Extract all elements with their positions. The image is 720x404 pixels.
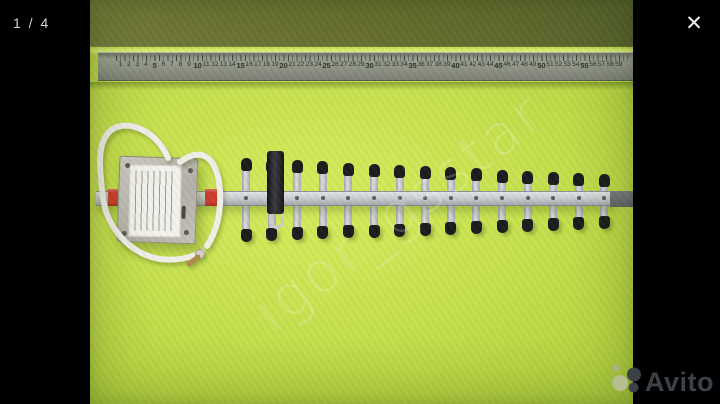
close-icon: ✕ bbox=[685, 12, 703, 35]
close-button[interactable]: ✕ bbox=[680, 10, 708, 38]
avito-logo-text: Avito bbox=[645, 367, 714, 398]
image-viewer: 1 / 4 ✕ 12345678910111213141516171819202… bbox=[0, 0, 720, 404]
product-photo[interactable]: 1234567891011121314151617181920212223242… bbox=[90, 0, 633, 404]
avito-logo: Avito bbox=[595, 358, 720, 404]
coax-cable bbox=[90, 0, 633, 404]
photo-counter: 1 / 4 bbox=[13, 15, 50, 31]
avito-logo-icon bbox=[595, 358, 645, 404]
